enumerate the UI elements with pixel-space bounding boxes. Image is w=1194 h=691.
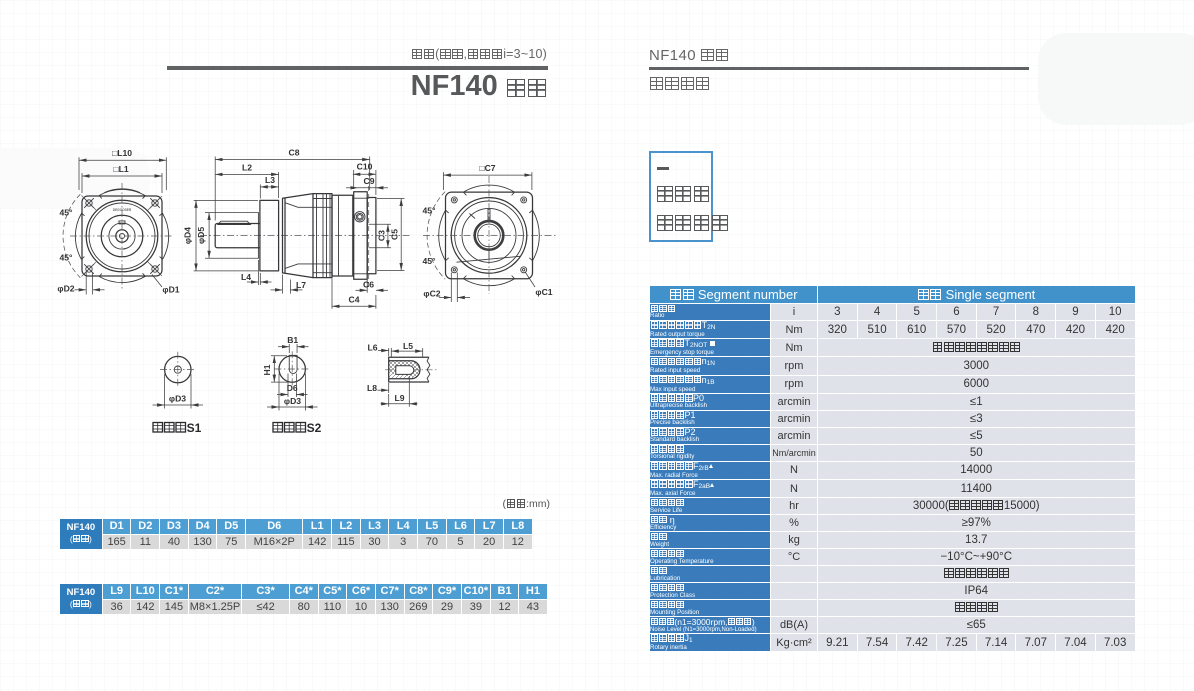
svg-text:C3: C3 bbox=[377, 230, 387, 241]
svg-text:S2: S2 bbox=[307, 421, 322, 435]
svg-text:L5: L5 bbox=[403, 341, 413, 351]
svg-text:L8: L8 bbox=[367, 383, 377, 393]
svg-text:C10: C10 bbox=[357, 161, 373, 171]
svg-text:φD3: φD3 bbox=[169, 394, 186, 404]
svg-text:45°: 45° bbox=[423, 206, 437, 216]
svg-text:φD5: φD5 bbox=[196, 227, 206, 244]
svg-text:φD2: φD2 bbox=[57, 284, 74, 294]
svg-text:45°: 45° bbox=[60, 253, 74, 263]
svg-text:φD4: φD4 bbox=[183, 227, 193, 244]
svg-text:D6: D6 bbox=[287, 383, 298, 393]
svg-text:φD3: φD3 bbox=[284, 396, 301, 406]
svg-text:L4: L4 bbox=[241, 272, 251, 282]
svg-text:L2: L2 bbox=[242, 162, 252, 172]
svg-text:C4: C4 bbox=[349, 294, 360, 304]
svg-text:45°: 45° bbox=[60, 208, 74, 218]
svg-text:B1: B1 bbox=[287, 335, 298, 345]
svg-text:H1: H1 bbox=[262, 364, 272, 375]
svg-text:C6: C6 bbox=[363, 279, 374, 289]
svg-text:φC1: φC1 bbox=[535, 287, 552, 297]
svg-text:C9: C9 bbox=[364, 176, 375, 186]
svg-text:S1: S1 bbox=[187, 421, 202, 435]
svg-text:L7: L7 bbox=[296, 280, 306, 290]
svg-text:L9: L9 bbox=[394, 393, 404, 403]
svg-text:C8: C8 bbox=[289, 148, 300, 158]
svg-text:C5: C5 bbox=[390, 229, 400, 240]
svg-text:□L10: □L10 bbox=[112, 148, 132, 158]
svg-text:L3: L3 bbox=[265, 175, 275, 185]
svg-text:□L1: □L1 bbox=[113, 164, 128, 174]
svg-text:φC2: φC2 bbox=[423, 289, 440, 299]
svg-text:□C7: □C7 bbox=[479, 163, 495, 173]
svg-text:L6: L6 bbox=[367, 343, 377, 353]
svg-text:45°: 45° bbox=[423, 256, 437, 266]
svg-text:φD1: φD1 bbox=[162, 285, 179, 295]
